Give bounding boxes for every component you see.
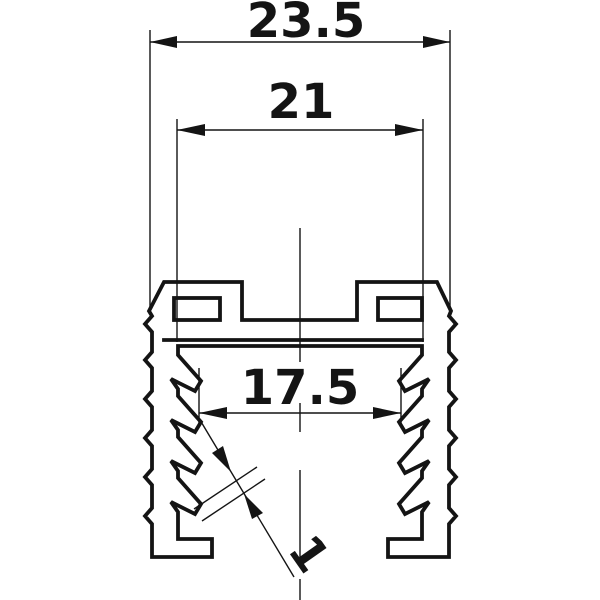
dimension-value-overall-width: 23.5 — [247, 0, 365, 49]
left-tab-slot — [174, 298, 220, 320]
right-tab-slot — [378, 298, 422, 320]
arrowhead-right-icon — [395, 124, 423, 136]
profile-cross-section-drawing: 23.5 21 17.5 — [0, 0, 600, 600]
dimension-wall-thickness: 1 — [194, 420, 340, 582]
dimension-value-channel-width: 17.5 — [241, 360, 359, 416]
arrowhead-lower-icon — [244, 494, 263, 519]
dimension-value-wall-thickness: 1 — [278, 525, 341, 582]
arrowhead-left-icon — [150, 36, 177, 48]
arrowhead-left-icon — [199, 407, 227, 419]
arrowhead-right-icon — [423, 36, 450, 48]
arrowhead-left-icon — [177, 124, 205, 136]
arrowhead-upper-icon — [212, 446, 231, 472]
technical-drawing-page: 23.5 21 17.5 — [0, 0, 600, 600]
dimension-value-slot-span: 21 — [268, 74, 335, 130]
arrowhead-right-icon — [373, 407, 401, 419]
